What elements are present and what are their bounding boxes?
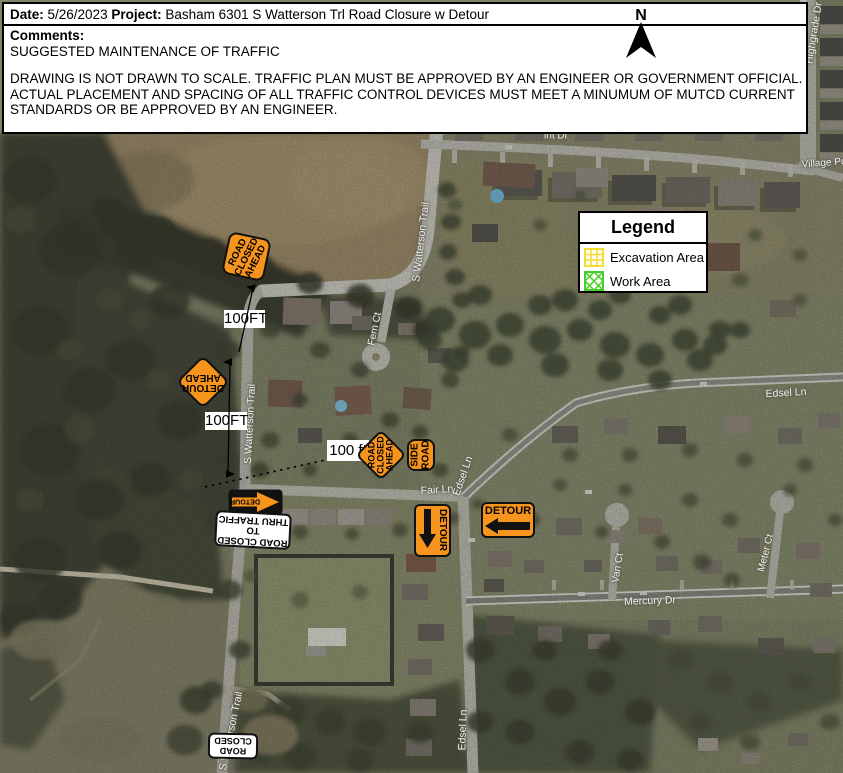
svg-text:N: N [635, 7, 647, 24]
svg-text:DETOUR: DETOUR [229, 497, 260, 506]
svg-text:DETOUR: DETOUR [437, 509, 448, 552]
